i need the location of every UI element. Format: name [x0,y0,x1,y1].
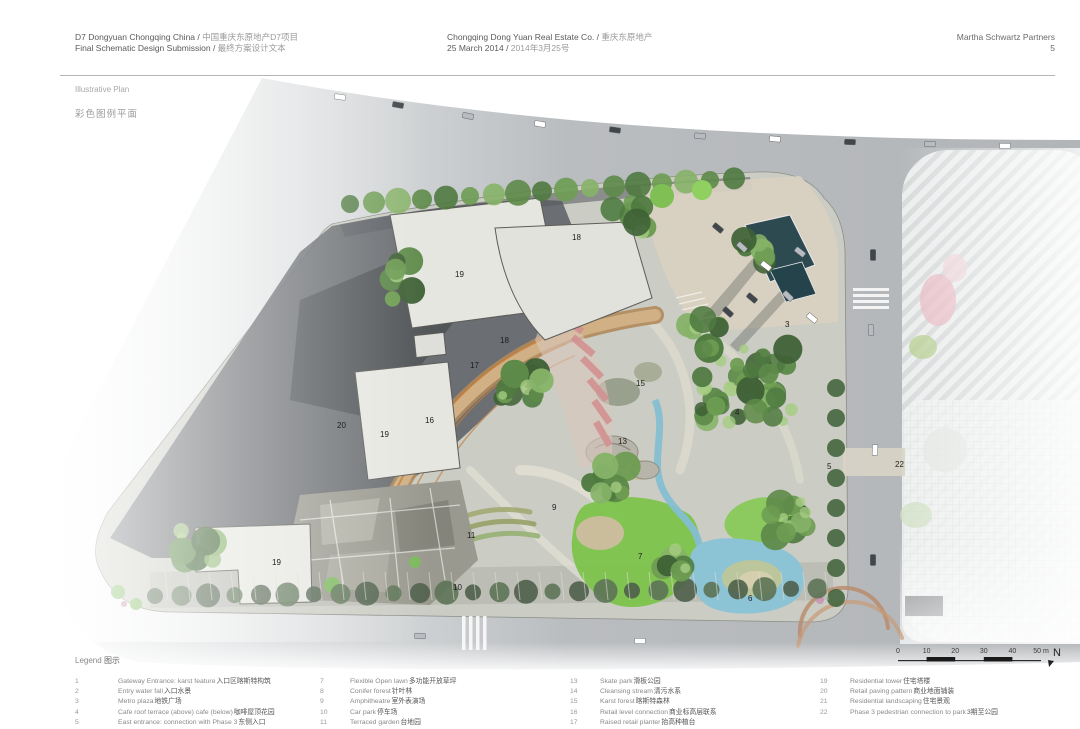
legend-item-zh: 滑板公园 [634,677,661,687]
legend-item-zh: 抬高种植台 [661,718,695,728]
legend-item-en: Entry water fall [118,687,163,697]
svg-text:10: 10 [923,648,931,655]
legend-item-num: 9 [320,697,350,707]
legend-item-zh: 商业地面铺装 [913,687,954,697]
legend-item: 16Retail level connection 商业标高层联系 [570,708,717,718]
legend-item: 19Residential tower 住宅塔楼 [820,677,998,687]
legend-item-en: Residential tower [850,677,902,687]
plan-label-13: 13 [618,437,627,446]
plan-label-19: 19 [380,430,389,439]
header-firm: Martha Schwartz Partners 5 [957,32,1055,53]
plan-label-16: 16 [425,416,434,425]
plan-label-11: 11 [467,531,476,540]
legend-item-en: Amphitheatre [350,697,390,707]
phase3-block [900,148,1080,644]
legend-item-num: 7 [320,677,350,687]
plan-label-17: 17 [470,361,479,370]
legend-item: 7Flexible Open lawn 多功能开放草坪 [320,677,456,687]
legend-item: 1Gateway Entrance: karst feature 入口区喀斯特构… [75,677,275,687]
legend-item-zh: 住宅景观 [923,697,950,707]
legend-item: 5East entrance: connection with Phase 3 … [75,718,275,728]
project-title-en: D7 Dongyuan Chongqing China / [75,32,202,42]
legend-item-zh: 地铁广场 [155,697,182,707]
svg-text:40: 40 [1009,648,1017,655]
legend-item-zh: 室外表演场 [391,697,425,707]
legend-item-zh: 喀斯特森林 [636,697,670,707]
legend-item-zh: 入口水景 [164,687,191,697]
presentation-page: 19183181715416201913522911719106 0102030… [0,0,1080,729]
submission-title-zh: 最终方案设计文本 [218,43,286,53]
legend-item-en: Metro plaza [118,697,154,707]
svg-text:0: 0 [896,648,900,655]
legend-item-zh: 台地园 [401,718,421,728]
plan-label-3: 3 [785,320,790,329]
site-plan-rendering: 19183181715416201913522911719106 0102030… [0,0,1080,729]
svg-text:50 m: 50 m [1033,648,1049,655]
plan-label-22: 22 [895,460,904,469]
plan-label-6: 6 [748,594,753,603]
plan-label-15: 15 [636,379,645,388]
legend-item-num: 13 [570,677,600,687]
legend-item: 22Phase 3 pedestrian connection to park … [820,708,998,718]
legend-item-num: 1 [75,677,118,687]
legend-item-en: Raised retail planter [600,718,660,728]
legend-item-en: Retail level connection [600,708,668,718]
legend-item-en: Gateway Entrance: karst feature [118,677,215,687]
date-en: 25 March 2014 / [447,43,511,53]
legend-item-num: 10 [320,708,350,718]
legend-item-en: Terraced garden [350,718,400,728]
legend-item-num: 22 [820,708,850,718]
legend-item-en: Car park [350,708,376,718]
legend-item-num: 5 [75,718,118,728]
left-fade-overlay [0,78,430,642]
legend-item-en: East entrance: connection with Phase 3 [118,718,237,728]
firm-name: Martha Schwartz Partners [957,32,1055,43]
legend-item-num: 16 [570,708,600,718]
legend-item-zh: 商业标高层联系 [669,708,717,718]
legend-item: 14Cleansing stream 清污水系 [570,687,717,697]
legend-item-zh: 咖啡屋顶花园 [234,708,275,718]
north-arrow: N [1053,647,1061,659]
legend-item: 13Skate park 滑板公园 [570,677,717,687]
date-zh: 2014年3月25号 [511,43,570,53]
legend-item-zh: 清污水系 [654,687,681,697]
plan-label-19: 19 [272,558,281,567]
legend-item-num: 20 [820,687,850,697]
header-project-title: D7 Dongyuan Chongqing China / 中国重庆东原地产D7… [75,32,298,53]
legend-column: 1Gateway Entrance: karst feature 入口区喀斯特构… [75,677,275,728]
legend-column: 13Skate park 滑板公园14Cleansing stream 清污水系… [570,677,717,728]
legend-item-zh: 停车场 [377,708,397,718]
plan-title: Illustrative Plan [75,85,129,94]
legend-title-zh: 图示 [104,656,120,665]
client-name-zh: 重庆东原地产 [601,32,652,42]
legend-item: 17Raised retail planter 抬高种植台 [570,718,717,728]
legend-item-num: 11 [320,718,350,728]
legend-item: 11Terraced garden 台地园 [320,718,456,728]
legend-item-zh: 3期至公园 [967,708,998,718]
legend-item-en: Cafe roof terrace (above) cafe (below) [118,708,233,718]
legend-item: 15Karst forest 喀斯特森林 [570,697,717,707]
plan-title-zh: 彩色图例平面 [75,106,138,120]
client-name-en: Chongqing Dong Yuan Real Estate Co. / [447,32,601,42]
legend-item: 8Conifer forest 针叶林 [320,687,456,697]
header-client-date: Chongqing Dong Yuan Real Estate Co. / 重庆… [447,32,652,53]
legend-title: Legend 图示 [75,655,120,666]
legend-item-zh: 东侧入口 [238,718,265,728]
plan-label-7: 7 [638,552,643,561]
legend-title-en: Legend [75,656,102,665]
submission-title-en: Final Schematic Design Submission / [75,43,218,53]
plan-label-19: 19 [455,270,464,279]
plan-label-5: 5 [827,462,832,471]
svg-text:20: 20 [951,648,959,655]
plan-label-20: 20 [337,421,346,430]
legend-item-num: 4 [75,708,118,718]
plan-label-10: 10 [453,583,462,592]
legend-item-num: 14 [570,687,600,697]
legend-item: 21Residential landscaping 住宅景观 [820,697,998,707]
legend-item-en: Karst forest [600,697,635,707]
legend-item-num: 19 [820,677,850,687]
legend-item-num: 8 [320,687,350,697]
plan-label-18: 18 [500,336,509,345]
legend-item-zh: 针叶林 [392,687,412,697]
plan-label-18: 18 [572,233,581,242]
header-divider [60,75,1055,76]
legend-item-en: Retail paving pattern [850,687,912,697]
legend-item-zh: 多功能开放草坪 [409,677,457,687]
legend-item-zh: 入口区喀斯特构筑 [216,677,270,687]
page-number: 5 [957,43,1055,54]
legend-item: 4Cafe roof terrace (above) cafe (below) … [75,708,275,718]
plan-label-9: 9 [552,503,557,512]
legend-item: 20Retail paving pattern 商业地面铺装 [820,687,998,697]
legend-item-en: Flexible Open lawn [350,677,408,687]
legend-item: 2Entry water fall 入口水景 [75,687,275,697]
bottom-fade-overlay [0,642,1080,674]
legend-item: 10Car park 停车场 [320,708,456,718]
legend-item-en: Residential landscaping [850,697,922,707]
legend-item-en: Skate park [600,677,633,687]
legend-item-num: 17 [570,718,600,728]
legend-item-num: 2 [75,687,118,697]
legend-item-num: 15 [570,697,600,707]
legend-item-zh: 住宅塔楼 [903,677,930,687]
legend-item-en: Cleansing stream [600,687,653,697]
legend-item: 3Metro plaza 地铁广场 [75,697,275,707]
plan-label-4: 4 [735,408,740,417]
legend-item: 9Amphitheatre 室外表演场 [320,697,456,707]
legend-item-num: 21 [820,697,850,707]
svg-text:30: 30 [980,648,988,655]
legend-item-num: 3 [75,697,118,707]
project-title-zh: 中国重庆东原地产D7项目 [202,32,298,42]
legend-item-en: Conifer forest [350,687,391,697]
legend-item-en: Phase 3 pedestrian connection to park [850,708,966,718]
legend-column: 7Flexible Open lawn 多功能开放草坪8Conifer fore… [320,677,456,728]
legend-column: 19Residential tower 住宅塔楼20Retail paving … [820,677,998,718]
